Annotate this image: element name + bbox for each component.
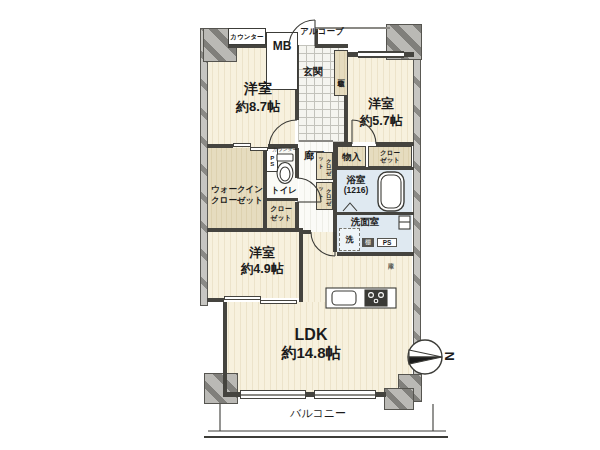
bedroom3-sliding-door-2	[260, 300, 297, 304]
wall-bedroom3-top	[207, 228, 303, 232]
wall-toilet-closet	[267, 198, 298, 201]
shoe-box: 下駄箱	[334, 50, 348, 96]
entrance-label: 玄関	[296, 66, 330, 77]
ldk-floor-upper	[303, 232, 337, 302]
meter-box-label: MB	[267, 40, 297, 53]
bathroom-label: 浴室	[336, 175, 376, 185]
closet-right-line2: ゼット	[369, 156, 411, 163]
storage-label: 物入	[338, 147, 365, 166]
bedroom2-name-label: 洋室	[345, 97, 417, 111]
compass-north-label: N	[442, 348, 456, 364]
closet-under-toilet-line2: ゼット	[264, 214, 298, 222]
entrance-step-line	[299, 140, 333, 142]
pipe-space-bottom-badge: PS	[377, 238, 397, 247]
left-exterior-wall	[200, 28, 208, 306]
washroom-label: 洗面室	[337, 217, 393, 227]
ldk-name-label: LDK	[275, 326, 347, 344]
closet-right-line1: クロー	[369, 149, 411, 156]
closet-mid-b: クローゼット	[316, 182, 333, 210]
closet-right-box: クロー ゼット	[368, 146, 412, 167]
bedroom1-size-label: 約8.7帖	[218, 100, 298, 114]
wic-sliding-door	[233, 143, 251, 147]
shelf-badge: 棚	[362, 238, 374, 247]
wic-label-line1: ウォークイン	[210, 185, 264, 194]
window-ldk-bottom-left-rail	[241, 394, 305, 396]
wall-entrance-top	[315, 44, 348, 48]
shoe-box-label: 下駄箱	[337, 54, 345, 94]
window-bedroom2-top	[358, 51, 404, 58]
wall-ldk-bottom-a	[223, 392, 240, 397]
wall-bedroom3-bottom	[207, 298, 224, 302]
wic-sliding-door-2	[250, 147, 268, 151]
corner-block-bottom-left	[204, 373, 238, 404]
window-ldk-bottom-right-rail	[315, 394, 375, 396]
bedroom1-name-label: 洋室	[222, 81, 294, 96]
ldk-size-label: 約14.8帖	[270, 345, 352, 362]
balcony-label: バルコニー	[280, 407, 356, 419]
wall-bathroom-top	[337, 167, 414, 170]
shelf-label: 棚	[365, 239, 371, 245]
closet-under-toilet-line1: クロー	[264, 205, 298, 213]
wall-bedroom3-right	[299, 232, 303, 302]
pipe-space-bottom-label: PS	[383, 239, 392, 246]
washer-box: 洗	[339, 228, 360, 251]
refrigerator-label: 冷蔵庫	[386, 258, 395, 292]
storage-box: 物入	[337, 146, 366, 167]
wall-bathroom-washroom	[337, 212, 414, 215]
counter-label: カウンター	[229, 29, 265, 44]
pipe-space-top-label: PS	[269, 150, 276, 172]
bedroom3-size-label: 約4.9帖	[226, 263, 298, 277]
wall-washroom-bottom	[337, 252, 414, 256]
closet-mid-a: クローゼット	[316, 152, 333, 180]
bedroom2-size-label: 約5.7帖	[345, 115, 417, 129]
washer-label: 洗	[340, 229, 359, 250]
wall-block-bottom-step	[384, 388, 414, 410]
bedroom3-name-label: 洋室	[226, 246, 298, 260]
wall-ldk-left	[223, 302, 227, 394]
wall-bedroom1-bottom-a	[207, 144, 233, 148]
alcove-label: アルコーブ	[296, 27, 348, 36]
closet-mid-a-label: クローゼット	[317, 154, 332, 178]
wall-ldk-bottom-c	[376, 392, 386, 397]
ldk-floor-kitchen	[337, 256, 412, 302]
toilet-label: トイレ	[270, 186, 298, 195]
closet-mid-b-label: クローゼット	[317, 184, 332, 208]
counter-box: カウンター	[228, 28, 266, 45]
wic-label-line2: クローゼット	[210, 196, 264, 205]
bathroom-size-label: (1216)	[334, 186, 378, 195]
toilet-counter-label: カウンター	[272, 147, 298, 153]
wall-ldk-bottom-b	[306, 392, 314, 397]
floor-plan: カウンター MB アルコーブ 玄関 下駄箱 洋室 約8.7帖 洋室 約5.7帖 …	[0, 0, 600, 450]
bedroom3-sliding-door	[224, 296, 261, 300]
